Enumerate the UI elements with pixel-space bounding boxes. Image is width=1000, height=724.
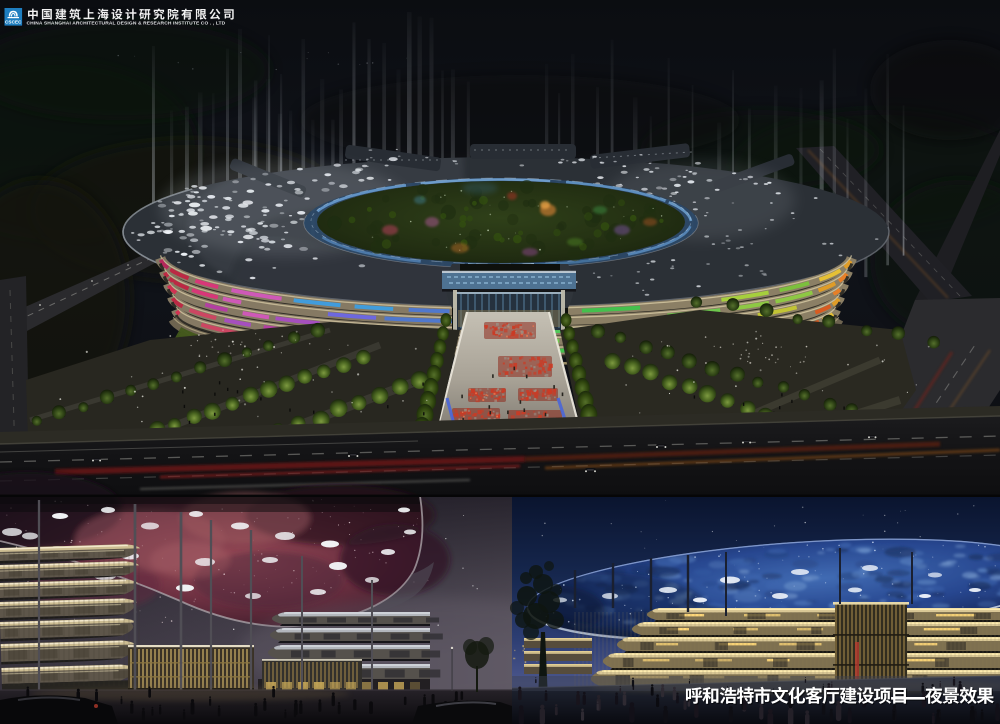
svg-text:CSCEC: CSCEC <box>5 19 22 24</box>
svg-text:CHINA SHANGHAI ARCHITECTURAL D: CHINA SHANGHAI ARCHITECTURAL DESIGN & RE… <box>27 20 226 26</box>
